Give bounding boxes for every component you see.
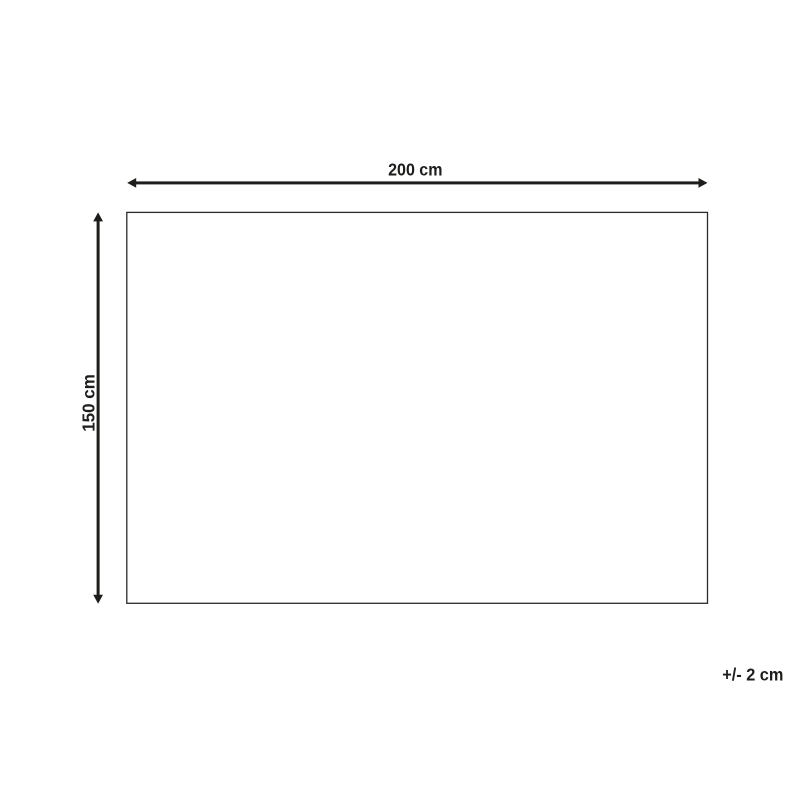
svg-text:+/- 2 cm: +/- 2 cm — [722, 664, 783, 684]
svg-text:150 cm: 150 cm — [78, 374, 98, 432]
svg-text:200 cm: 200 cm — [388, 160, 442, 180]
